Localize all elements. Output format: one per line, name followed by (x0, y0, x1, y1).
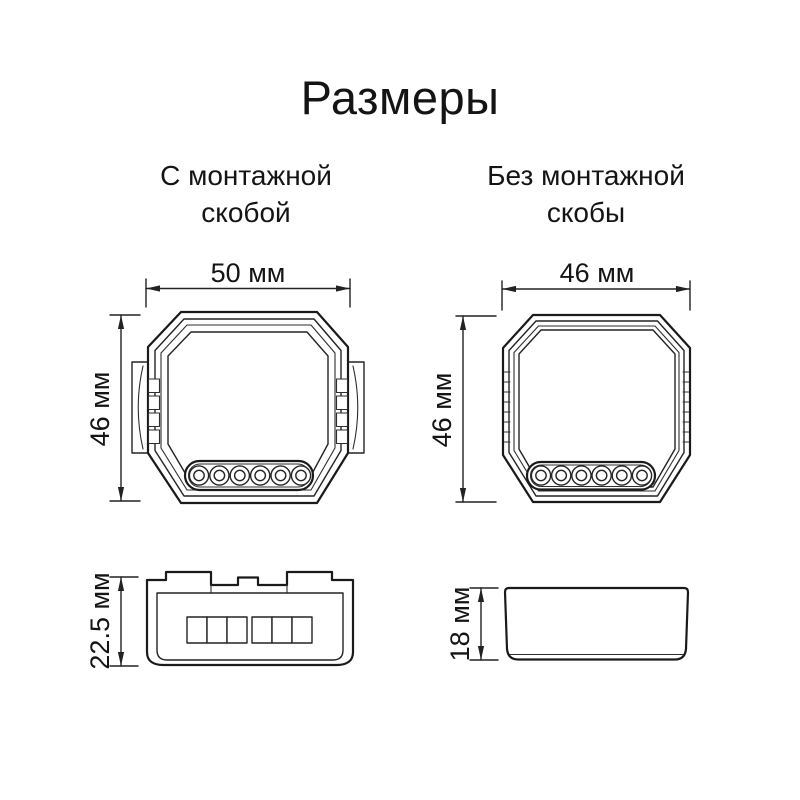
front-view-with-bracket: 50 мм 46 мм (85, 258, 364, 503)
terminal-openings (187, 617, 312, 643)
terminal-block (185, 461, 313, 490)
terminal-block (527, 462, 655, 490)
dimensions-diagram-canvas: 50 мм 46 мм (0, 0, 800, 800)
mounting-tab-right (348, 362, 364, 453)
width-dimension-with-bracket: 50 мм (146, 258, 350, 307)
depth-dimension-without-bracket: 18 мм (445, 587, 498, 662)
clip-ridges-right (337, 379, 348, 444)
clip-ridges-left (149, 379, 160, 444)
depth-dimension-with-bracket: 22.5 мм (85, 572, 138, 669)
width-label-with-bracket: 50 мм (211, 258, 286, 288)
side-profile-outline (505, 588, 688, 660)
side-profile-outline (147, 572, 353, 665)
side-view-without-bracket: 18 мм (445, 587, 688, 662)
mounting-tab-left (132, 362, 148, 453)
side-view-with-bracket: 22.5 мм (85, 572, 353, 670)
height-label-with-bracket: 46 мм (85, 372, 115, 447)
depth-label-with-bracket: 22.5 мм (85, 572, 115, 669)
depth-label-without-bracket: 18 мм (445, 587, 475, 662)
side-inner-body (157, 593, 343, 660)
width-dimension-without-bracket: 46 мм (502, 258, 690, 310)
height-dimension-without-bracket: 46 мм (427, 316, 496, 502)
height-label-without-bracket: 46 мм (427, 373, 457, 448)
width-label-without-bracket: 46 мм (560, 258, 635, 288)
front-view-without-bracket: 46 мм 46 мм (427, 258, 690, 502)
